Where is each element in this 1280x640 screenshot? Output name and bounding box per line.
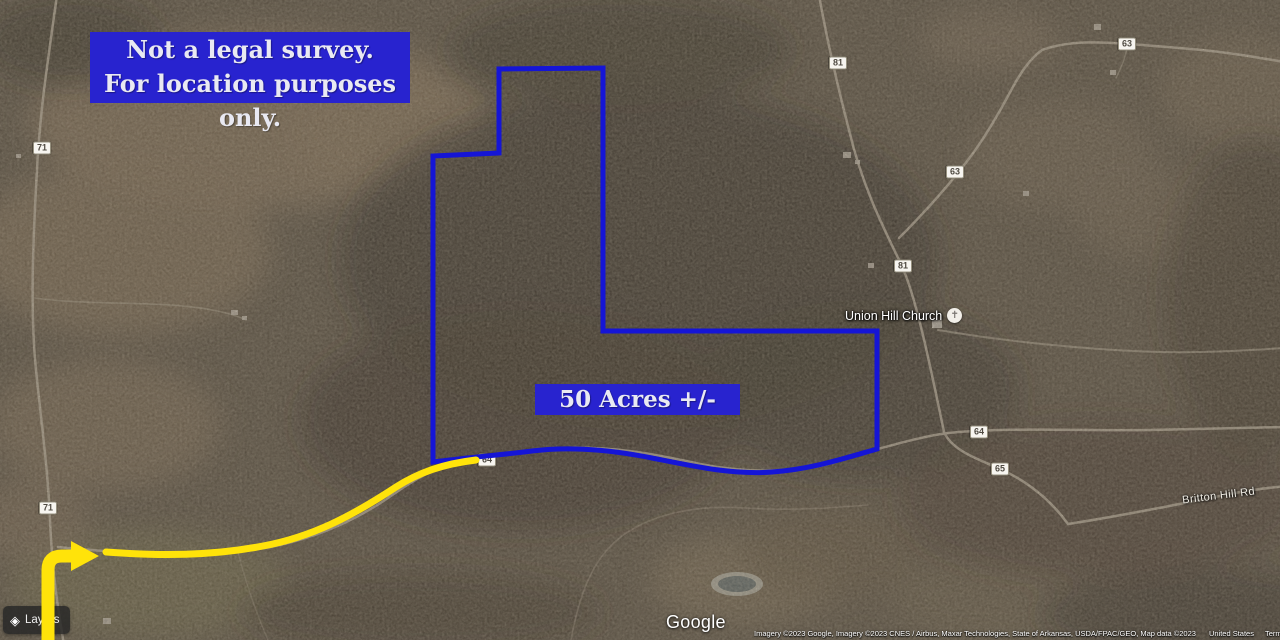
- imagery-credits: Imagery ©2023 Google, Imagery ©2023 CNES…: [754, 629, 1196, 638]
- access-route-arrowhead: [71, 541, 99, 571]
- disclaimer-line2: For location purposes only.: [90, 67, 410, 135]
- access-route-stem: [48, 556, 71, 640]
- attribution-link-united-states[interactable]: United States: [1209, 629, 1254, 638]
- google-maps-satellite-view: Union Hill Church ✝ Britton Hill Rd 7171…: [0, 0, 1280, 640]
- attribution-bar: Imagery ©2023 Google, Imagery ©2023 CNES…: [754, 629, 1280, 638]
- access-route-line: [106, 460, 476, 554]
- attribution-links: United StatesTermsPrivacySend feedback: [1209, 629, 1280, 638]
- google-logo[interactable]: Google: [666, 612, 726, 633]
- disclaimer-box: Not a legal survey. For location purpose…: [90, 32, 410, 103]
- disclaimer-line1: Not a legal survey.: [90, 33, 410, 67]
- acreage-label: 50 Acres +/-: [535, 384, 740, 415]
- attribution-link-terms[interactable]: Terms: [1265, 629, 1280, 638]
